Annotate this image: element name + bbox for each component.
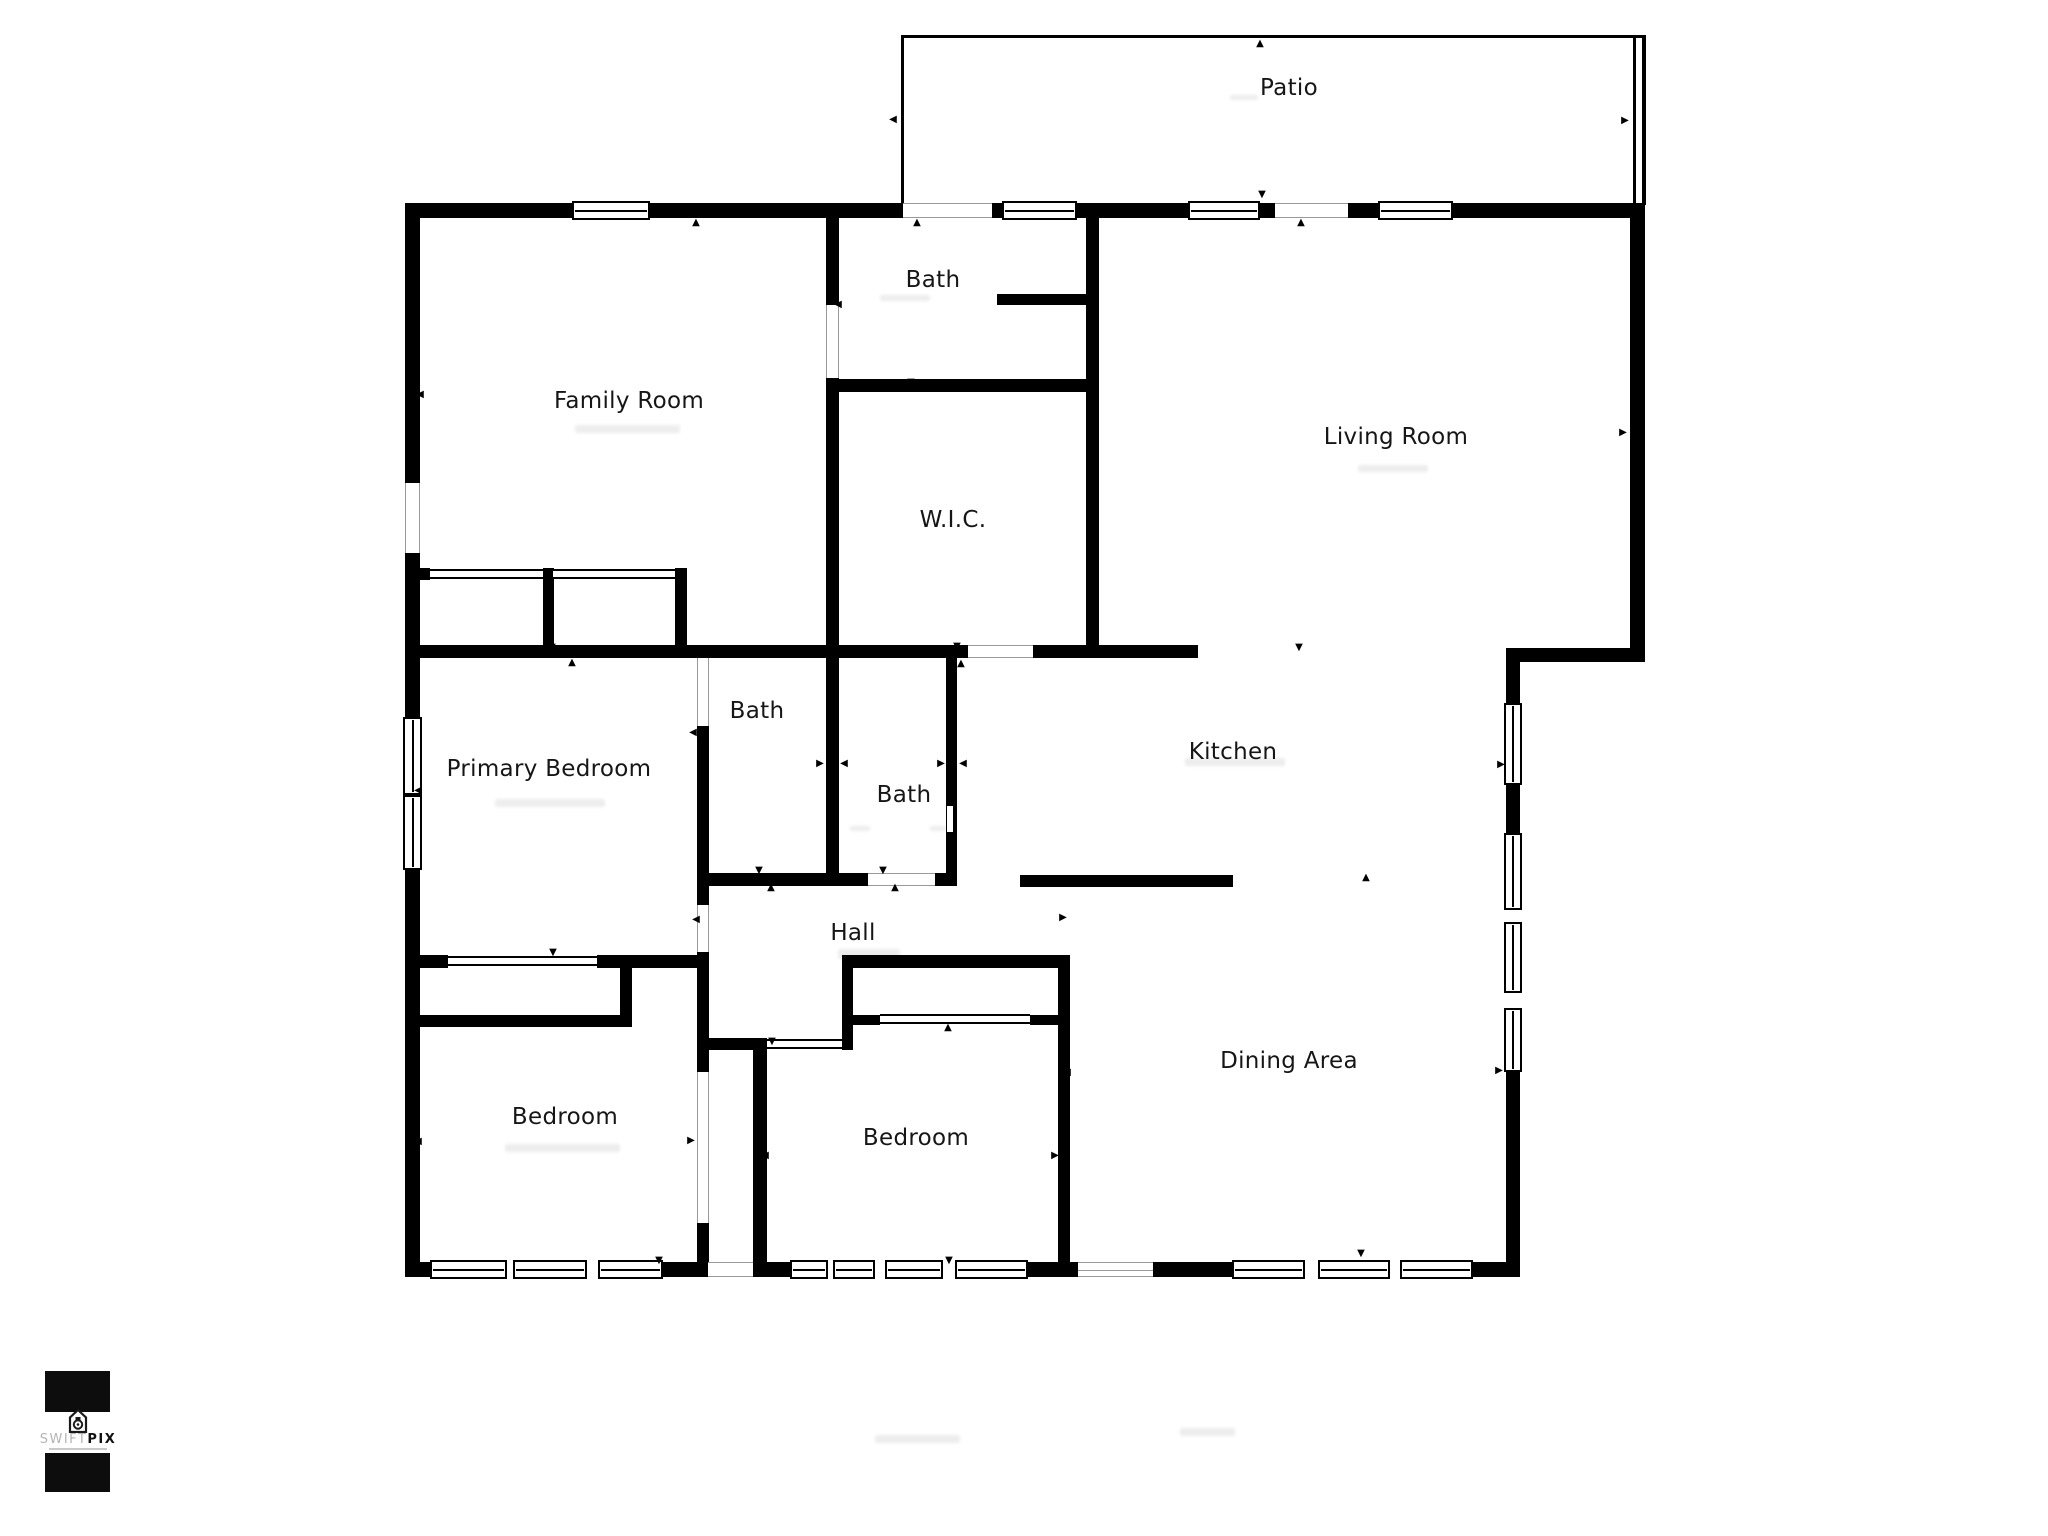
- direction-marker: ▼: [1357, 1249, 1365, 1259]
- wall: [946, 658, 957, 873]
- patio-outline: [901, 35, 1645, 38]
- window: [403, 717, 422, 795]
- wall: [697, 1223, 709, 1262]
- wall: [663, 1262, 708, 1277]
- direction-marker: ◀: [959, 759, 967, 769]
- room-label-bath-mid-right: Bath: [877, 782, 932, 808]
- door-opening: [697, 1072, 709, 1223]
- dimension-smudge: [838, 949, 900, 959]
- room-label-wic: W.I.C.: [920, 507, 987, 533]
- wall: [418, 1015, 632, 1027]
- direction-marker: ▲: [1256, 39, 1264, 49]
- room-label-kitchen: Kitchen: [1189, 739, 1278, 765]
- direction-marker: ◀: [840, 759, 848, 769]
- direction-marker: ▲: [1297, 218, 1305, 228]
- closet-track: [880, 1014, 1030, 1024]
- wall: [1086, 218, 1099, 658]
- wall: [1077, 203, 1188, 218]
- wall: [708, 1038, 767, 1050]
- wall: [1506, 662, 1520, 703]
- wall: [543, 568, 554, 645]
- room-label-bedroom-mid: Bedroom: [863, 1125, 969, 1151]
- dimension-smudge: [875, 1435, 960, 1443]
- wall-notch: [947, 806, 953, 832]
- window: [955, 1260, 1028, 1279]
- logo-tagline-bar: [49, 1448, 107, 1450]
- direction-marker: ▼: [907, 378, 915, 388]
- direction-marker: ▼: [953, 642, 961, 652]
- dimension-smudge: [495, 799, 605, 807]
- direction-marker: ▼: [755, 866, 763, 876]
- direction-marker: ◀: [889, 115, 897, 125]
- floor-plan-canvas: ▲▲▲▲▲▲▲▲▲▲▼▼▼▼▼▼▼▼▼▼▼▼◀◀◀◀◀◀◀◀◀◀◀◀▶▶▶▶▶▶…: [0, 0, 2048, 1536]
- door-opening: [826, 305, 839, 378]
- wall: [1028, 1262, 1078, 1277]
- wall: [1153, 1262, 1232, 1277]
- wall: [697, 952, 709, 1072]
- wall: [597, 955, 698, 968]
- wall: [405, 1262, 430, 1277]
- wall: [405, 203, 572, 218]
- direction-marker: ▲: [891, 883, 899, 893]
- direction-marker: ▶: [687, 1136, 695, 1146]
- logo-text-bold: PIX: [87, 1432, 116, 1447]
- window: [1378, 201, 1453, 220]
- door-opening: [697, 905, 709, 952]
- wall: [1033, 645, 1198, 658]
- wall: [620, 968, 632, 1015]
- wall: [852, 1015, 880, 1025]
- room-label-bath-mid-left: Bath: [730, 698, 785, 724]
- window: [1400, 1260, 1473, 1279]
- wall: [1630, 203, 1645, 662]
- direction-marker: ▶: [1621, 116, 1629, 126]
- window: [1504, 703, 1522, 785]
- direction-marker: ◀: [1063, 1068, 1071, 1078]
- sliding-door-opening: [1078, 1262, 1153, 1277]
- room-label-bedroom-left: Bedroom: [512, 1104, 618, 1130]
- dimension-smudge: [1180, 1428, 1235, 1436]
- closet-track: [767, 1039, 842, 1049]
- wall: [675, 568, 687, 645]
- dimension-smudge: [880, 295, 930, 301]
- wall: [418, 645, 968, 658]
- direction-marker: ▲: [767, 883, 775, 893]
- wall: [826, 378, 839, 873]
- closet-track: [430, 569, 543, 579]
- direction-marker: ▼: [768, 1037, 776, 1047]
- window: [572, 201, 650, 220]
- wall: [1453, 203, 1645, 218]
- wall: [650, 203, 903, 218]
- room-label-patio: Patio: [1260, 75, 1318, 101]
- window: [1318, 1260, 1390, 1279]
- closet-track: [448, 956, 597, 966]
- door-opening: [1275, 203, 1348, 218]
- wall: [753, 1262, 790, 1277]
- patio-outline: [901, 35, 904, 205]
- wall: [405, 203, 420, 483]
- dimension-smudge: [850, 826, 870, 831]
- door-opening: [697, 658, 709, 726]
- room-label-hall: Hall: [830, 920, 875, 946]
- wall: [992, 203, 1002, 218]
- window: [430, 1260, 507, 1279]
- direction-marker: ▶: [1051, 1151, 1059, 1161]
- window: [1504, 833, 1522, 910]
- direction-marker: ◀: [692, 915, 700, 925]
- window: [1188, 201, 1260, 220]
- window: [598, 1260, 663, 1279]
- window: [885, 1260, 943, 1279]
- logo-wordmark: SWIFTPIX: [40, 1433, 117, 1446]
- direction-marker: ◀: [1088, 427, 1096, 437]
- direction-marker: ▼: [1258, 190, 1266, 200]
- direction-marker: ▶: [1619, 428, 1627, 438]
- direction-marker: ▶: [1497, 760, 1505, 770]
- wall: [418, 955, 448, 968]
- window: [833, 1260, 875, 1279]
- direction-marker: ▲: [568, 658, 576, 668]
- direction-marker: ▼: [1295, 643, 1303, 653]
- direction-marker: ▲: [944, 1023, 952, 1033]
- door-opening: [903, 203, 992, 218]
- wall: [997, 294, 1086, 305]
- direction-marker: ◀: [414, 786, 422, 796]
- window: [1232, 1260, 1305, 1279]
- direction-marker: ◀: [761, 1151, 769, 1161]
- direction-marker: ▶: [1495, 1066, 1503, 1076]
- room-label-primary-bedroom: Primary Bedroom: [447, 756, 652, 782]
- direction-marker: ▲: [692, 218, 700, 228]
- direction-marker: ▼: [655, 1256, 663, 1266]
- door-opening: [868, 873, 935, 886]
- direction-marker: ◀: [416, 390, 424, 400]
- patio-outline: [1642, 35, 1646, 205]
- direction-marker: ▲: [1362, 873, 1370, 883]
- direction-marker: ▶: [937, 759, 945, 769]
- direction-marker: ▶: [816, 759, 824, 769]
- wall: [405, 568, 430, 580]
- direction-marker: ◀: [834, 300, 842, 310]
- patio-outline: [1633, 35, 1636, 205]
- direction-marker: ▼: [549, 948, 557, 958]
- logo-text-light: SWIFT: [40, 1432, 88, 1447]
- window: [403, 795, 422, 870]
- direction-marker: ▼: [548, 643, 556, 653]
- wall: [1506, 1072, 1520, 1277]
- window: [1504, 922, 1522, 993]
- window: [513, 1260, 587, 1279]
- window: [1002, 201, 1077, 220]
- dimension-smudge: [505, 1144, 620, 1152]
- dimension-smudge: [575, 425, 680, 433]
- direction-marker: ◀: [414, 1137, 422, 1147]
- wall: [826, 218, 839, 305]
- closet-track: [553, 569, 675, 579]
- door-opening: [708, 1262, 753, 1277]
- direction-marker: ▲: [913, 218, 921, 228]
- wall: [697, 873, 868, 886]
- wall: [1506, 785, 1520, 833]
- direction-marker: ▶: [1059, 913, 1067, 923]
- wall: [405, 870, 420, 1277]
- dimension-smudge: [1230, 95, 1258, 100]
- wall: [1058, 955, 1070, 1262]
- wall: [1020, 875, 1233, 887]
- wall: [1030, 1015, 1060, 1025]
- dimension-smudge: [930, 826, 946, 831]
- window: [790, 1260, 828, 1279]
- door-opening: [405, 483, 420, 553]
- door-opening: [968, 645, 1033, 658]
- room-label-family-room: Family Room: [554, 388, 704, 414]
- logo-block-top: [45, 1371, 110, 1412]
- direction-marker: ◀: [689, 728, 697, 738]
- logo-block-bottom: [45, 1453, 110, 1492]
- wall: [935, 873, 957, 886]
- direction-marker: ▲: [957, 659, 965, 669]
- room-label-dining-area: Dining Area: [1220, 1048, 1358, 1074]
- direction-marker: ▼: [879, 866, 887, 876]
- wall: [1348, 203, 1380, 218]
- room-label-living-room: Living Room: [1324, 424, 1469, 450]
- direction-marker: ▼: [945, 1256, 953, 1266]
- dimension-smudge: [1358, 465, 1428, 472]
- window: [1504, 1008, 1522, 1072]
- wall: [1506, 648, 1645, 662]
- wall: [826, 379, 1097, 392]
- room-label-bath-top: Bath: [906, 267, 961, 293]
- wall: [842, 955, 853, 1050]
